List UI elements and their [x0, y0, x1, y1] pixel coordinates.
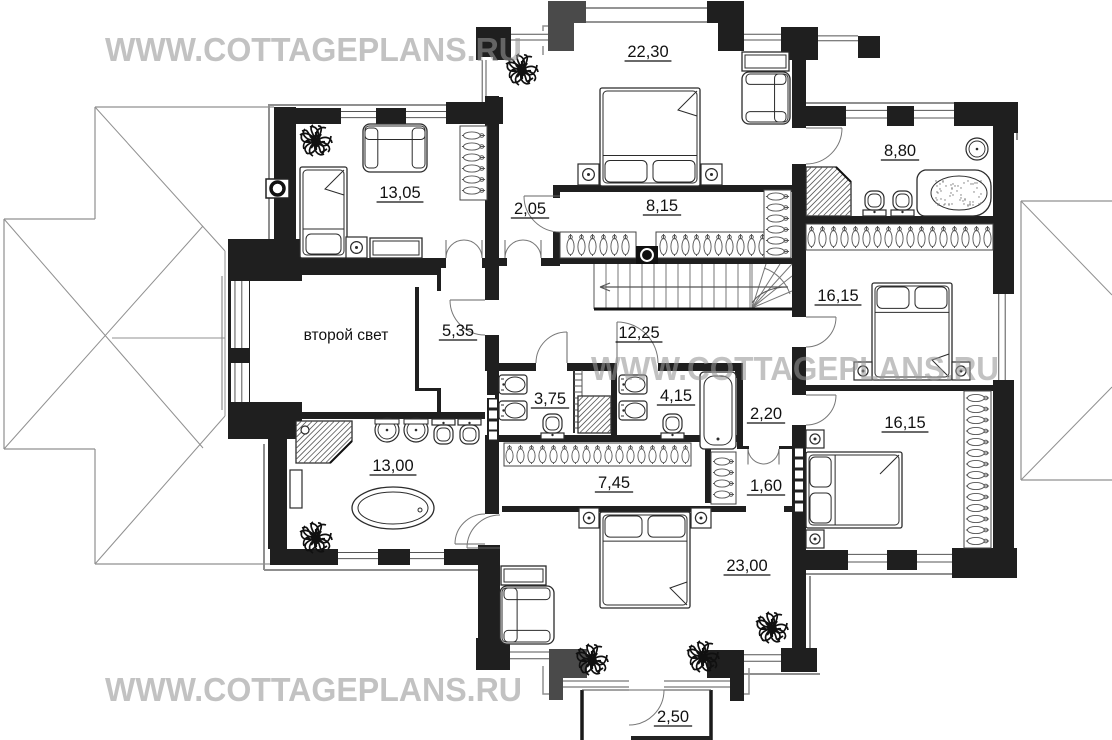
- svg-text:13,00: 13,00: [372, 457, 413, 475]
- svg-text:второй свет: второй свет: [304, 327, 389, 344]
- svg-text:WWW.COTTAGEPLANS.RU: WWW.COTTAGEPLANS.RU: [105, 31, 522, 68]
- svg-text:3,75: 3,75: [534, 390, 566, 408]
- svg-text:12,25: 12,25: [618, 324, 659, 342]
- svg-text:WWW.COTTAGEPLANS.RU: WWW.COTTAGEPLANS.RU: [105, 671, 522, 708]
- svg-text:16,15: 16,15: [884, 414, 925, 432]
- svg-text:23,00: 23,00: [726, 557, 767, 575]
- svg-text:WWW.COTTAGEPLANS.RU: WWW.COTTAGEPLANS.RU: [591, 350, 999, 387]
- svg-text:8,15: 8,15: [646, 197, 678, 215]
- svg-text:2,05: 2,05: [514, 200, 546, 218]
- svg-text:13,05: 13,05: [379, 184, 420, 202]
- svg-text:8,80: 8,80: [884, 142, 916, 160]
- svg-text:2,20: 2,20: [750, 405, 782, 423]
- svg-text:2,50: 2,50: [657, 708, 689, 726]
- svg-text:16,15: 16,15: [817, 287, 858, 305]
- svg-text:22,30: 22,30: [627, 43, 668, 61]
- svg-text:4,15: 4,15: [660, 387, 692, 405]
- svg-text:5,35: 5,35: [442, 322, 474, 340]
- svg-text:1,60: 1,60: [750, 477, 782, 495]
- svg-text:7,45: 7,45: [598, 474, 630, 492]
